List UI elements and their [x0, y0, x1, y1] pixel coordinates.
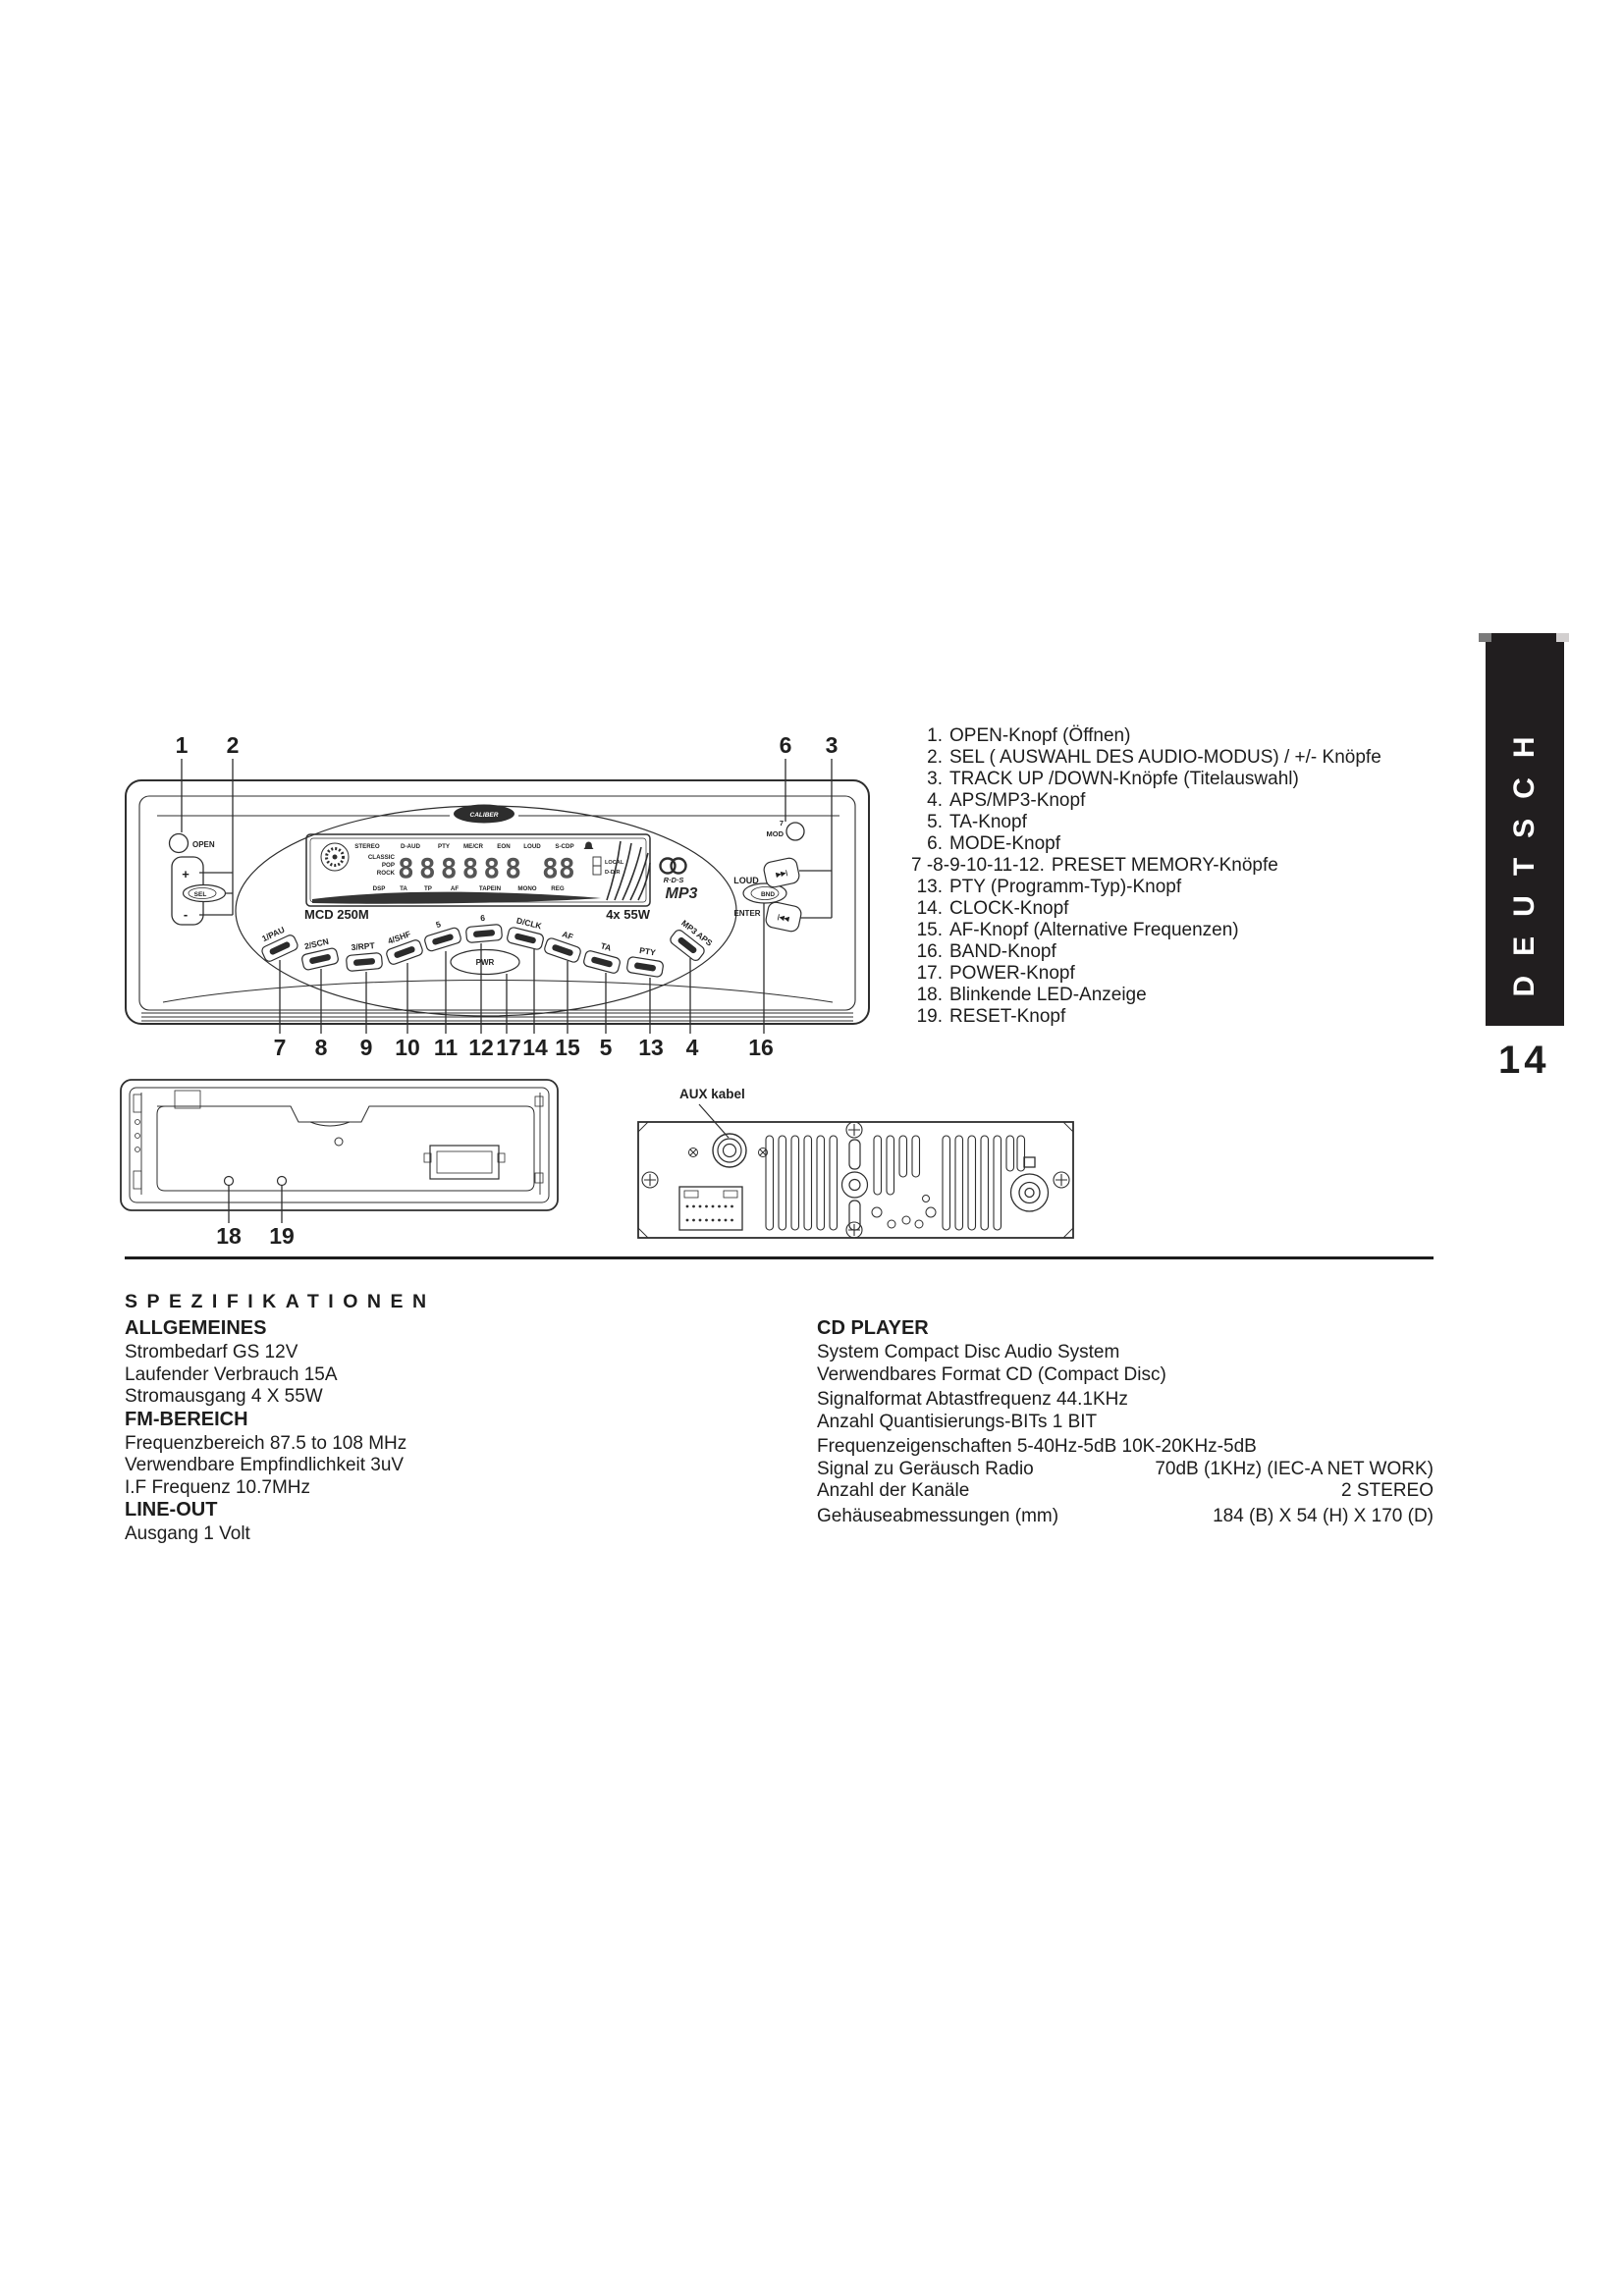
preset-button-2: 2/SCN — [298, 934, 340, 970]
spec-line: Gehäuseabmessungen (mm)184 (B) X 54 (H) … — [817, 1506, 1434, 1528]
radio-face-outline — [139, 796, 855, 1010]
specs-title: SPEZIFIKATIONEN — [125, 1291, 436, 1313]
spec-line: Frequenzbereich 87.5 to 108 MHz — [125, 1433, 773, 1456]
list-item: 2.SEL ( AUSWAHL DES AUDIO-MODUS) / +/- K… — [911, 747, 1481, 769]
iso-connector-pins — [686, 1205, 733, 1222]
spec-line: System Compact Disc Audio System — [817, 1342, 1434, 1364]
aux-connector — [724, 1145, 736, 1157]
model-label: MCD 250M — [304, 907, 369, 922]
chassis-detail — [134, 1171, 141, 1189]
track-down-button: |◀◀ — [765, 901, 803, 934]
power-label: 4x 55W — [606, 907, 651, 922]
svg-text:AF: AF — [561, 929, 574, 941]
spec-line: Verwendbare Empfindlichkeit 3uV — [125, 1455, 773, 1477]
specs-heading: CD PLAYER — [817, 1317, 1434, 1339]
iso-connector — [679, 1187, 742, 1230]
callout-number: 17 — [496, 1035, 521, 1060]
chassis-detail — [135, 1148, 140, 1152]
list-item: 6.MODE-Knopf — [911, 833, 1481, 855]
front-panel-diagram: 1 2 6 3 CALIBER OPEN 7 MOD STEREO D-AUD … — [118, 721, 893, 1065]
section-divider — [125, 1256, 1434, 1259]
track-up-button: ▶▶| — [763, 857, 801, 889]
lcd-indicator: TP — [424, 885, 432, 892]
aux-label: AUX kabel — [679, 1087, 745, 1101]
plus-label: + — [182, 867, 189, 881]
callout-number: 16 — [748, 1035, 774, 1060]
list-item: 16.BAND-Knopf — [911, 941, 1481, 963]
callout-number: 8 — [315, 1035, 328, 1060]
specs-heading: FM-BEREICH — [125, 1409, 773, 1430]
callout-number: 7 — [274, 1035, 287, 1060]
chassis-panel — [157, 1106, 534, 1191]
mode-label: MOD — [767, 829, 785, 838]
sel-label: SEL — [194, 891, 207, 898]
chassis-cutout-inner — [437, 1151, 492, 1173]
spec-line: Signalformat Abtastfrequenz 44.1KHz — [817, 1389, 1434, 1412]
spec-line: Frequenzeigenschaften 5-40Hz-5dB 10K-20K… — [817, 1436, 1434, 1459]
band-label: BND — [761, 891, 775, 898]
enter-label: ENTER — [733, 909, 760, 918]
spec-line: I.F Frequenz 10.7MHz — [125, 1477, 773, 1500]
chassis-detail — [135, 1134, 140, 1139]
callout-number: 13 — [638, 1035, 664, 1060]
antenna-connector — [1011, 1157, 1049, 1211]
screw-icon — [689, 1148, 768, 1157]
callout-number: 18 — [216, 1223, 242, 1249]
lcd-indicator: D-AUD — [401, 843, 420, 850]
lcd-indicator: REG — [551, 885, 565, 892]
lcd-digits: 888888 — [398, 852, 526, 884]
lcd-box-icon — [593, 866, 601, 875]
iso-connector-tab — [684, 1191, 698, 1198]
chassis-hole — [335, 1138, 343, 1146]
chassis-cutout — [430, 1146, 499, 1179]
lcd-indicator: STEREO — [354, 843, 380, 850]
lcd-genre: CLASSIC — [368, 854, 396, 861]
lcd-indicator: AF — [451, 885, 459, 892]
svg-text:PTY: PTY — [639, 945, 657, 958]
preset-button-5: 5 — [420, 915, 462, 952]
spec-line: Anzahl Quantisierungs-BITs 1 BIT — [817, 1412, 1434, 1434]
svg-text:3/RPT: 3/RPT — [351, 940, 376, 952]
preset-button-1: 1/PAU — [255, 922, 299, 962]
manual-page: DEUTSCH 14 1 2 6 3 CALIBER OPEN 7 MOD ST… — [0, 0, 1624, 2296]
aux-connector — [718, 1139, 741, 1162]
rds-logo-icon — [672, 859, 686, 874]
svg-text:2/SCN: 2/SCN — [303, 936, 330, 951]
power-button-label: PWR — [476, 958, 495, 967]
lcd-indicator: ME/CR — [463, 843, 483, 850]
chassis-detail — [535, 1173, 543, 1183]
callout-number: 10 — [395, 1035, 420, 1060]
list-item: 18.Blinkende LED-Anzeige — [911, 985, 1481, 1006]
list-item: 19.RESET-Knopf — [911, 1006, 1481, 1028]
lcd-indicator: D-DIR — [605, 870, 621, 876]
list-item: 7 -8-9-10-11-12.PRESET MEMORY-Knöpfe — [911, 855, 1481, 877]
led-indicator — [225, 1177, 234, 1186]
callout-number: 2 — [227, 732, 240, 758]
callout-number: 6 — [780, 732, 792, 758]
clock-button: D/CLK — [507, 914, 548, 950]
open-button — [170, 834, 189, 853]
mode-button — [786, 823, 804, 840]
spec-line: Verwendbares Format CD (Compact Disc) — [817, 1364, 1434, 1387]
chassis-detail — [134, 1095, 141, 1112]
open-label: OPEN — [192, 840, 215, 849]
spec-line: Ausgang 1 Volt — [125, 1523, 773, 1546]
preset-button-3: 3/RPT — [345, 940, 382, 972]
callout-number: 9 — [360, 1035, 373, 1060]
aux-leader-line — [699, 1104, 729, 1138]
callout-number: 5 — [600, 1035, 613, 1060]
page-number: 14 — [1498, 1039, 1550, 1083]
bell-icon — [584, 842, 594, 850]
lcd-genre: ROCK — [377, 870, 396, 877]
lcd-indicator: TA — [400, 885, 407, 892]
scan-mark-right — [1556, 633, 1569, 642]
rds-label: R·D·S — [664, 876, 684, 884]
specs-right-column: CD PLAYER System Compact Disc Audio Syst… — [817, 1317, 1434, 1527]
language-tab: DEUTSCH — [1486, 633, 1564, 1026]
callout-number: 3 — [826, 732, 839, 758]
mp3-logo: MP3 — [666, 885, 698, 902]
lcd-indicator: EON — [497, 843, 511, 850]
minus-label: - — [184, 907, 188, 922]
pty-button: PTY — [626, 943, 666, 977]
spec-line: Strombedarf GS 12V — [125, 1342, 773, 1364]
callout-list: 1.OPEN-Knopf (Öffnen) 2.SEL ( AUSWAHL DE… — [911, 725, 1481, 1028]
chassis-detail — [535, 1096, 543, 1106]
af-button: AF — [543, 925, 585, 963]
spec-line: Signal zu Geräusch Radio70dB (1KHz) (IEC… — [817, 1459, 1434, 1481]
callout-number: 4 — [686, 1035, 699, 1060]
spec-line: Anzahl der Kanäle2 STEREO — [817, 1480, 1434, 1503]
svg-text:5: 5 — [435, 919, 443, 930]
svg-text:TA: TA — [600, 940, 613, 952]
list-item: 4.APS/MP3-Knopf — [911, 790, 1481, 812]
spec-line: Laufender Verbrauch 15A — [125, 1364, 773, 1387]
vent-slots — [766, 1136, 1025, 1230]
chassis-diagram: 18 19 — [118, 1075, 569, 1256]
lcd-indicator: TAPEIN — [479, 885, 502, 892]
brand-label: CALIBER — [470, 812, 499, 819]
spec-line: Stromausgang 4 X 55W — [125, 1386, 773, 1409]
callout-leader-lines — [229, 1186, 282, 1223]
lcd-digits-small: 88 — [542, 852, 575, 884]
mode-number: 7 — [780, 819, 784, 828]
callout-number: 19 — [269, 1223, 295, 1249]
lcd-indicator: LOCAL — [605, 860, 624, 866]
preset-button-4: 4/SHF — [381, 927, 424, 966]
list-item: 3.TRACK UP /DOWN-Knöpfe (Titelauswahl) — [911, 769, 1481, 790]
lcd-indicator: PTY — [438, 843, 451, 850]
center-bracket — [842, 1140, 868, 1230]
lcd-indicator: S-CDP — [555, 843, 573, 850]
callout-number: 15 — [555, 1035, 580, 1060]
specs-heading: ALLGEMEINES — [125, 1317, 773, 1339]
language-tab-label: DEUTSCH — [1508, 717, 1542, 996]
lcd-genre: POP — [382, 862, 395, 869]
vent-holes — [872, 1196, 936, 1229]
list-item: 14.CLOCK-Knopf — [911, 898, 1481, 920]
chassis-latch — [175, 1091, 200, 1108]
callout-number: 14 — [522, 1035, 548, 1060]
reset-hole — [278, 1177, 287, 1186]
list-item: 13.PTY (Programm-Typ)-Knopf — [911, 877, 1481, 898]
lcd-box-icon — [593, 857, 601, 866]
callout-number: 1 — [176, 732, 189, 758]
list-item: 5.TA-Knopf — [911, 812, 1481, 833]
lcd-indicator: LOUD — [523, 843, 541, 850]
lcd-indicator: DSP — [373, 885, 386, 892]
specs-left-column: ALLGEMEINES Strombedarf GS 12V Laufender… — [125, 1317, 773, 1546]
chassis-detail — [135, 1120, 140, 1125]
callout-number: 11 — [434, 1035, 459, 1060]
list-item: 17.POWER-Knopf — [911, 963, 1481, 985]
preset-button-6: 6 — [464, 912, 502, 943]
list-item: 1.OPEN-Knopf (Öffnen) — [911, 725, 1481, 747]
svg-text:6: 6 — [480, 913, 486, 923]
list-item: 15.AF-Knopf (Alternative Frequenzen) — [911, 920, 1481, 941]
scan-mark-left — [1479, 633, 1491, 642]
ta-button: TA — [583, 937, 624, 974]
iso-connector-tab — [724, 1191, 737, 1198]
callout-number: 12 — [468, 1035, 494, 1060]
rear-view-diagram: AUX kabel — [628, 1075, 1100, 1261]
lcd-indicator: MONO — [517, 885, 536, 892]
aps-mp3-button: MP3 APS — [668, 918, 714, 963]
cd-swirl-center — [333, 855, 338, 860]
specs-heading: LINE-OUT — [125, 1499, 773, 1521]
